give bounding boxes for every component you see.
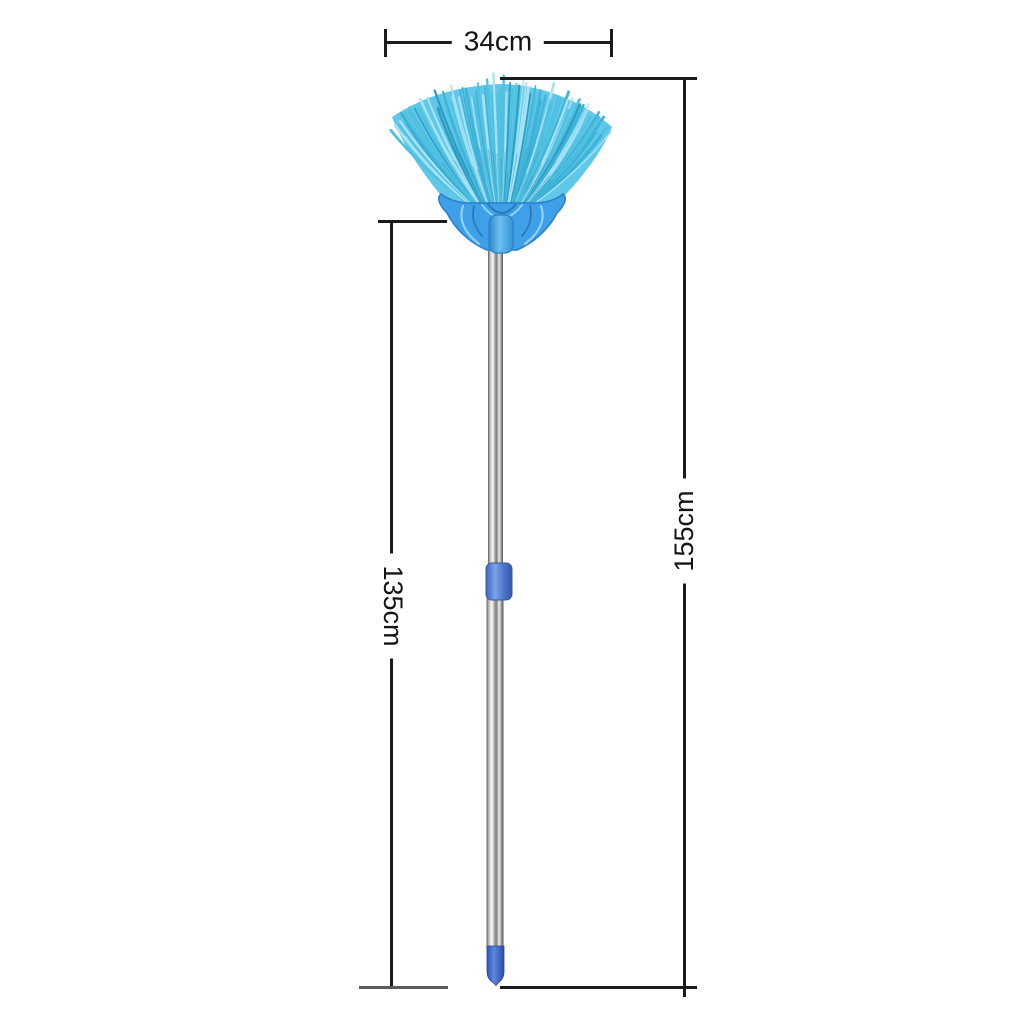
- pole-length-dimension-label: 135cm: [377, 553, 407, 658]
- width-dim-tick-right: [610, 29, 613, 57]
- brush-head: [439, 194, 565, 253]
- fan-bristles: [391, 74, 612, 216]
- width-dimension-label: 34cm: [452, 27, 544, 58]
- pole-dim-bottom-tick: [359, 986, 448, 989]
- pole-upper-section: [488, 248, 503, 568]
- total-length-dimension-label: 155cm: [670, 478, 700, 583]
- pole-dim-top-tick: [378, 220, 447, 223]
- pole-collar: [486, 563, 512, 600]
- total-dim-top-line: [500, 77, 697, 80]
- product-dimension-image: 34cm 155cm 135cm: [0, 0, 1024, 1024]
- total-dim-bottom-line: [500, 986, 697, 989]
- broom-illustration: [0, 0, 1024, 1024]
- pole-end-cap: [487, 946, 504, 986]
- head-neck: [489, 215, 513, 253]
- pole-lower-section: [487, 566, 504, 950]
